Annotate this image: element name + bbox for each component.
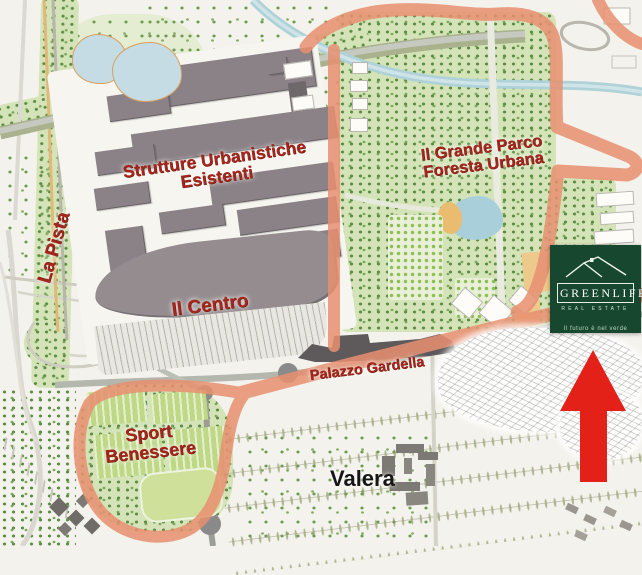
logo-tagline-text: Il futuro è nel verde bbox=[550, 326, 641, 332]
logo-brand-text: GREENLIFE bbox=[557, 283, 634, 303]
label-valera: Valera bbox=[330, 466, 395, 492]
masterplan-map: { "map": { "labels": { "strutture": { "l… bbox=[0, 0, 642, 546]
location-arrow-icon bbox=[560, 348, 628, 484]
logo-subtitle-text: REAL ESTATE bbox=[550, 306, 641, 312]
roofline-icon bbox=[550, 253, 641, 283]
greenlife-logo: GREENLIFE REAL ESTATE Il futuro è nel ve… bbox=[550, 245, 641, 333]
